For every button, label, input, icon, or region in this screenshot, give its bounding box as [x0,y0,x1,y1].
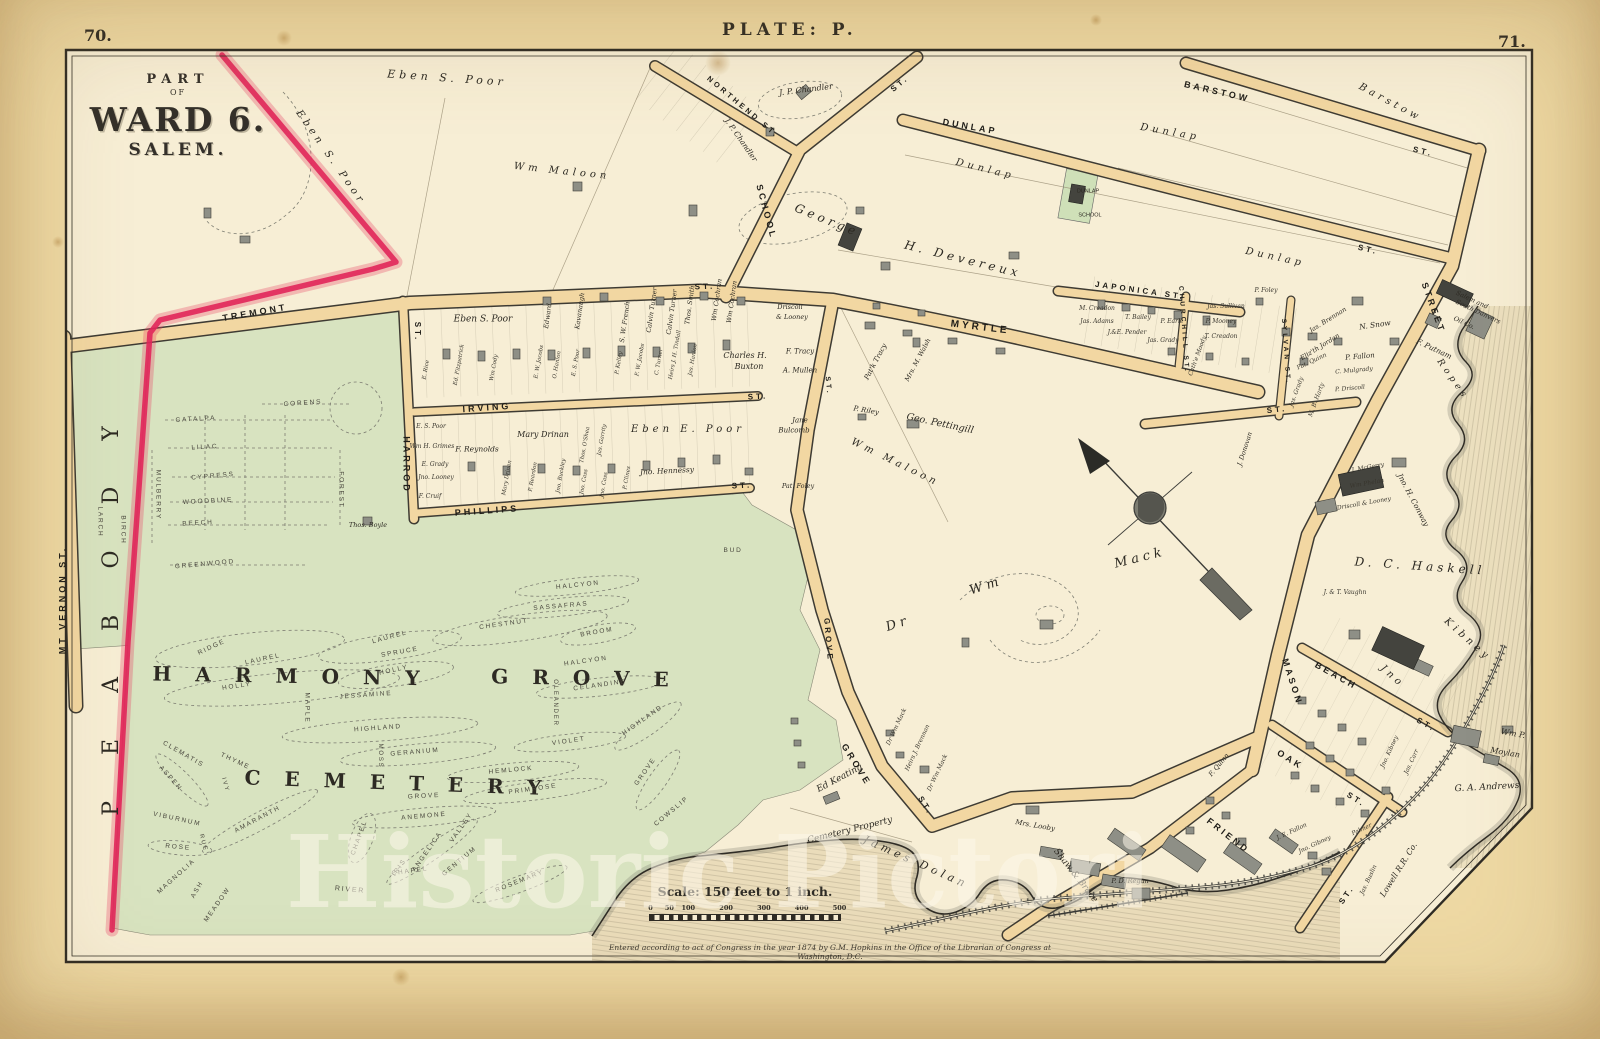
title-of: OF [88,88,268,97]
title-salem: SALEM. [88,140,268,160]
scale-tick: 0 [648,904,653,912]
page-number-left: 70. [84,26,112,45]
page-number-right: 71. [1498,32,1526,51]
plate-label: PLATE: P. [722,20,858,40]
scale-bar [649,914,841,921]
scale-tick: 400 [795,904,809,912]
scale-tick: 50 [665,904,674,912]
scale-block: Scale: 150 feet to 1 inch. 0501002003004… [640,884,850,921]
atlas-sheet: TREMONTST.MT VERNON ST.HARRODST.IRVINGST… [0,0,1600,1039]
scale-tick: 500 [833,904,847,912]
scale-tick: 200 [719,904,733,912]
copyright-line: Entered according to act of Congress in … [600,943,1060,961]
scale-ticks: 050100200300400500 [640,904,850,913]
scale-tick: 100 [682,904,696,912]
scale-tick: 300 [757,904,771,912]
title-ward: WARD 6. [88,100,268,139]
title-part: PART [88,72,268,87]
scale-text: Scale: 150 feet to 1 inch. [640,884,850,899]
map-title-block: PART OF WARD 6. SALEM. [88,72,268,160]
